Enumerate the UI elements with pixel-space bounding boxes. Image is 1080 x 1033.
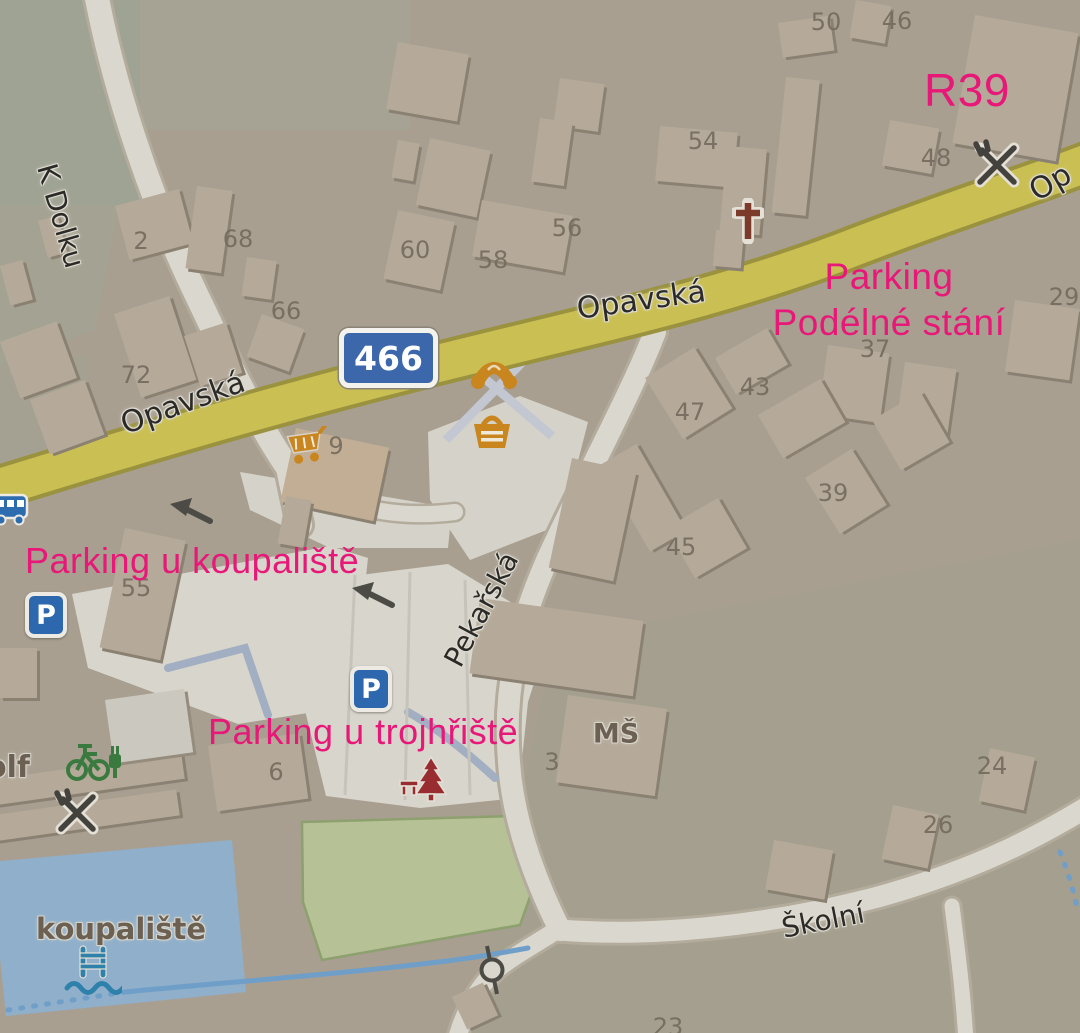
house-number: 43	[740, 373, 771, 401]
parking-sign-letter: P	[36, 600, 56, 631]
house-number: 23	[653, 1013, 684, 1033]
house-number: 2	[133, 227, 148, 255]
house-number: 24	[977, 752, 1008, 780]
house-number: 9	[328, 432, 343, 460]
house-number: 60	[400, 236, 431, 264]
parking-sign-icon: P	[350, 666, 392, 712]
house-number: 72	[121, 361, 152, 389]
annotation-parking-trojhriste: Parking u trojhřiště	[208, 711, 518, 753]
house-number: 56	[552, 214, 583, 242]
house-number: 48	[921, 144, 952, 172]
house-number: 47	[675, 398, 706, 426]
poi-label-golf-partial: olf	[0, 750, 30, 785]
house-number: 68	[223, 225, 254, 253]
annotation-parking-podelne: Parking Podélné stání	[773, 254, 1006, 347]
house-number: 50	[811, 8, 842, 36]
map-base-layer	[0, 0, 1080, 1033]
house-number: 45	[666, 533, 697, 561]
house-number: 6	[268, 758, 283, 786]
poi-label-koupaliste: koupaliště	[36, 912, 206, 946]
house-number: 54	[688, 127, 719, 155]
house-number: 26	[923, 811, 954, 839]
annotation-line1: Parking	[773, 254, 1006, 300]
poi-label-kindergarten: MŠ	[593, 719, 639, 750]
house-number: 3	[544, 748, 559, 776]
annotation-line2: Podélné stání	[773, 300, 1006, 346]
route-shield-466: 466	[339, 328, 438, 388]
annotation-r39: R39	[924, 63, 1010, 117]
house-number: 29	[1049, 283, 1080, 311]
house-number: 58	[478, 246, 509, 274]
land-patch	[140, 0, 410, 130]
map-canvas[interactable]: P P 466 K Dolku Opavská Opavská Op Pekař…	[0, 0, 1080, 1033]
house-number: 46	[882, 7, 913, 35]
parking-sign-icon: P	[25, 592, 67, 638]
route-number: 466	[354, 339, 423, 378]
annotation-parking-koupaliste: Parking u koupaliště	[25, 540, 359, 582]
house-number: 39	[818, 479, 849, 507]
parking-sign-letter: P	[361, 674, 381, 705]
house-number: 66	[271, 297, 302, 325]
